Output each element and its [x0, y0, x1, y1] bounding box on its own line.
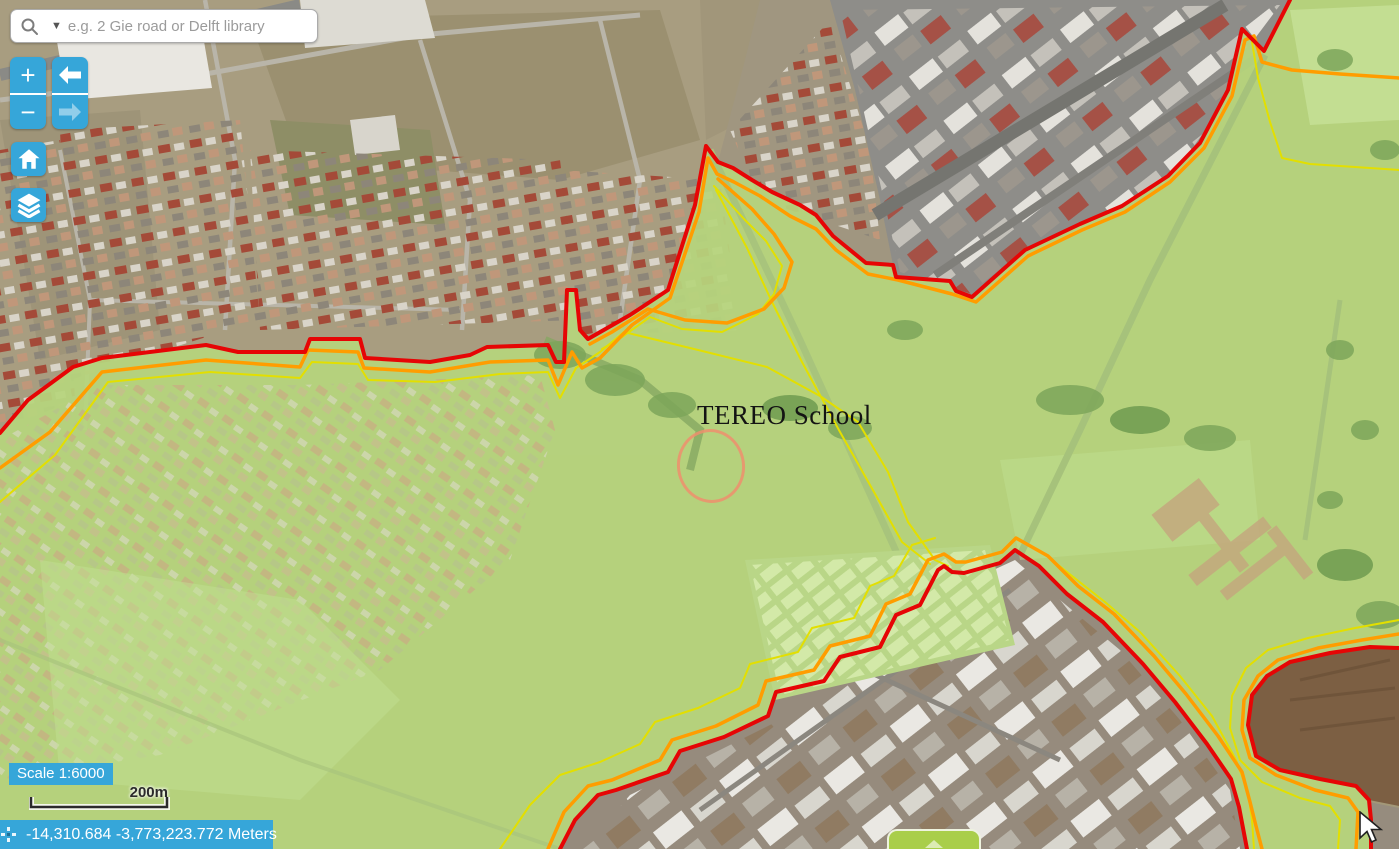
forward-arrow-icon: [57, 102, 83, 122]
coordinate-readout: -14,310.684 -3,773,223.772 Meters: [0, 820, 273, 849]
minus-icon: −: [20, 99, 35, 125]
search-icon: [20, 17, 39, 36]
plus-icon: +: [20, 62, 35, 88]
coordinate-text: -14,310.684 -3,773,223.772 Meters: [17, 826, 277, 844]
search-dropdown-caret-icon[interactable]: ▼: [51, 20, 62, 32]
up-arrow-icon: [925, 840, 943, 848]
crosshair-icon[interactable]: [0, 820, 17, 849]
history-control: [52, 57, 88, 129]
map-label-school: TEREO School: [697, 400, 872, 431]
search-input[interactable]: [68, 18, 317, 35]
home-button[interactable]: [11, 142, 46, 176]
search-box: ▼: [10, 9, 318, 43]
forward-button[interactable]: [52, 93, 88, 129]
mouse-cursor: [1357, 811, 1385, 849]
scalebar: [29, 796, 170, 815]
zoom-control: + −: [10, 57, 46, 129]
zoom-in-button[interactable]: +: [10, 57, 46, 93]
layers-button[interactable]: [11, 188, 46, 222]
scale-indicator: Scale 1:6000: [9, 763, 113, 785]
map-application: TEREO School ▼ + −: [0, 0, 1399, 849]
expand-panel-button[interactable]: [887, 829, 981, 849]
zoom-out-button[interactable]: −: [10, 93, 46, 129]
layers-icon: [16, 192, 42, 218]
back-arrow-icon: [57, 65, 83, 85]
back-button[interactable]: [52, 57, 88, 93]
home-icon: [17, 147, 41, 171]
